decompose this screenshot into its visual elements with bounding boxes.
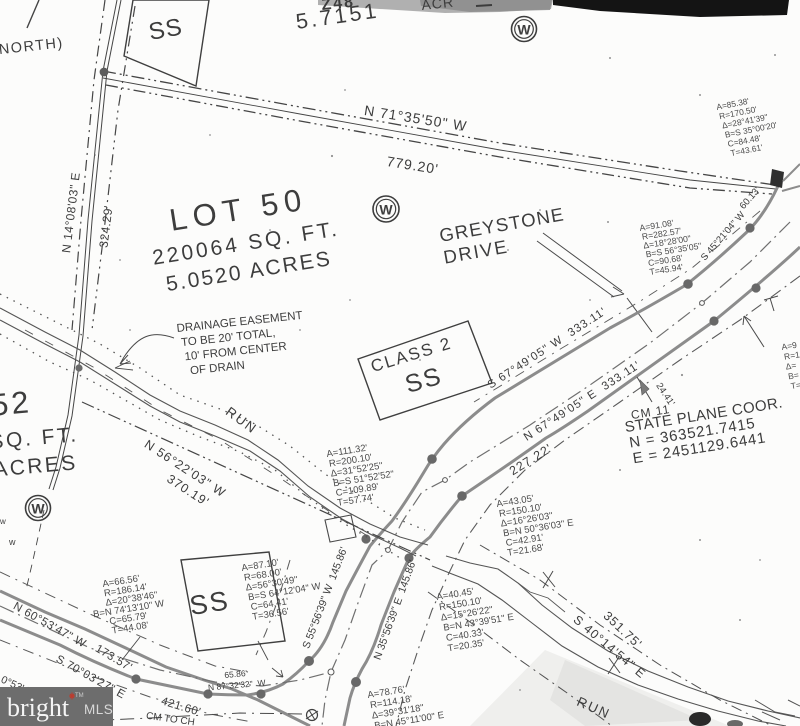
svg-text:w: w [8,537,16,547]
svg-text:T=: T= [790,380,800,391]
svg-text:SS: SS [187,585,231,621]
svg-text:W: W [379,202,393,218]
svg-text:bright: bright [7,693,70,722]
svg-text:W: W [31,501,45,517]
svg-text:52: 52 [0,384,33,422]
svg-text:w: w [0,517,6,526]
svg-text:65.86': 65.86' [224,668,248,680]
svg-text:W: W [517,22,531,38]
svg-text:MLS: MLS [84,702,113,717]
svg-text:TM: TM [75,693,84,699]
